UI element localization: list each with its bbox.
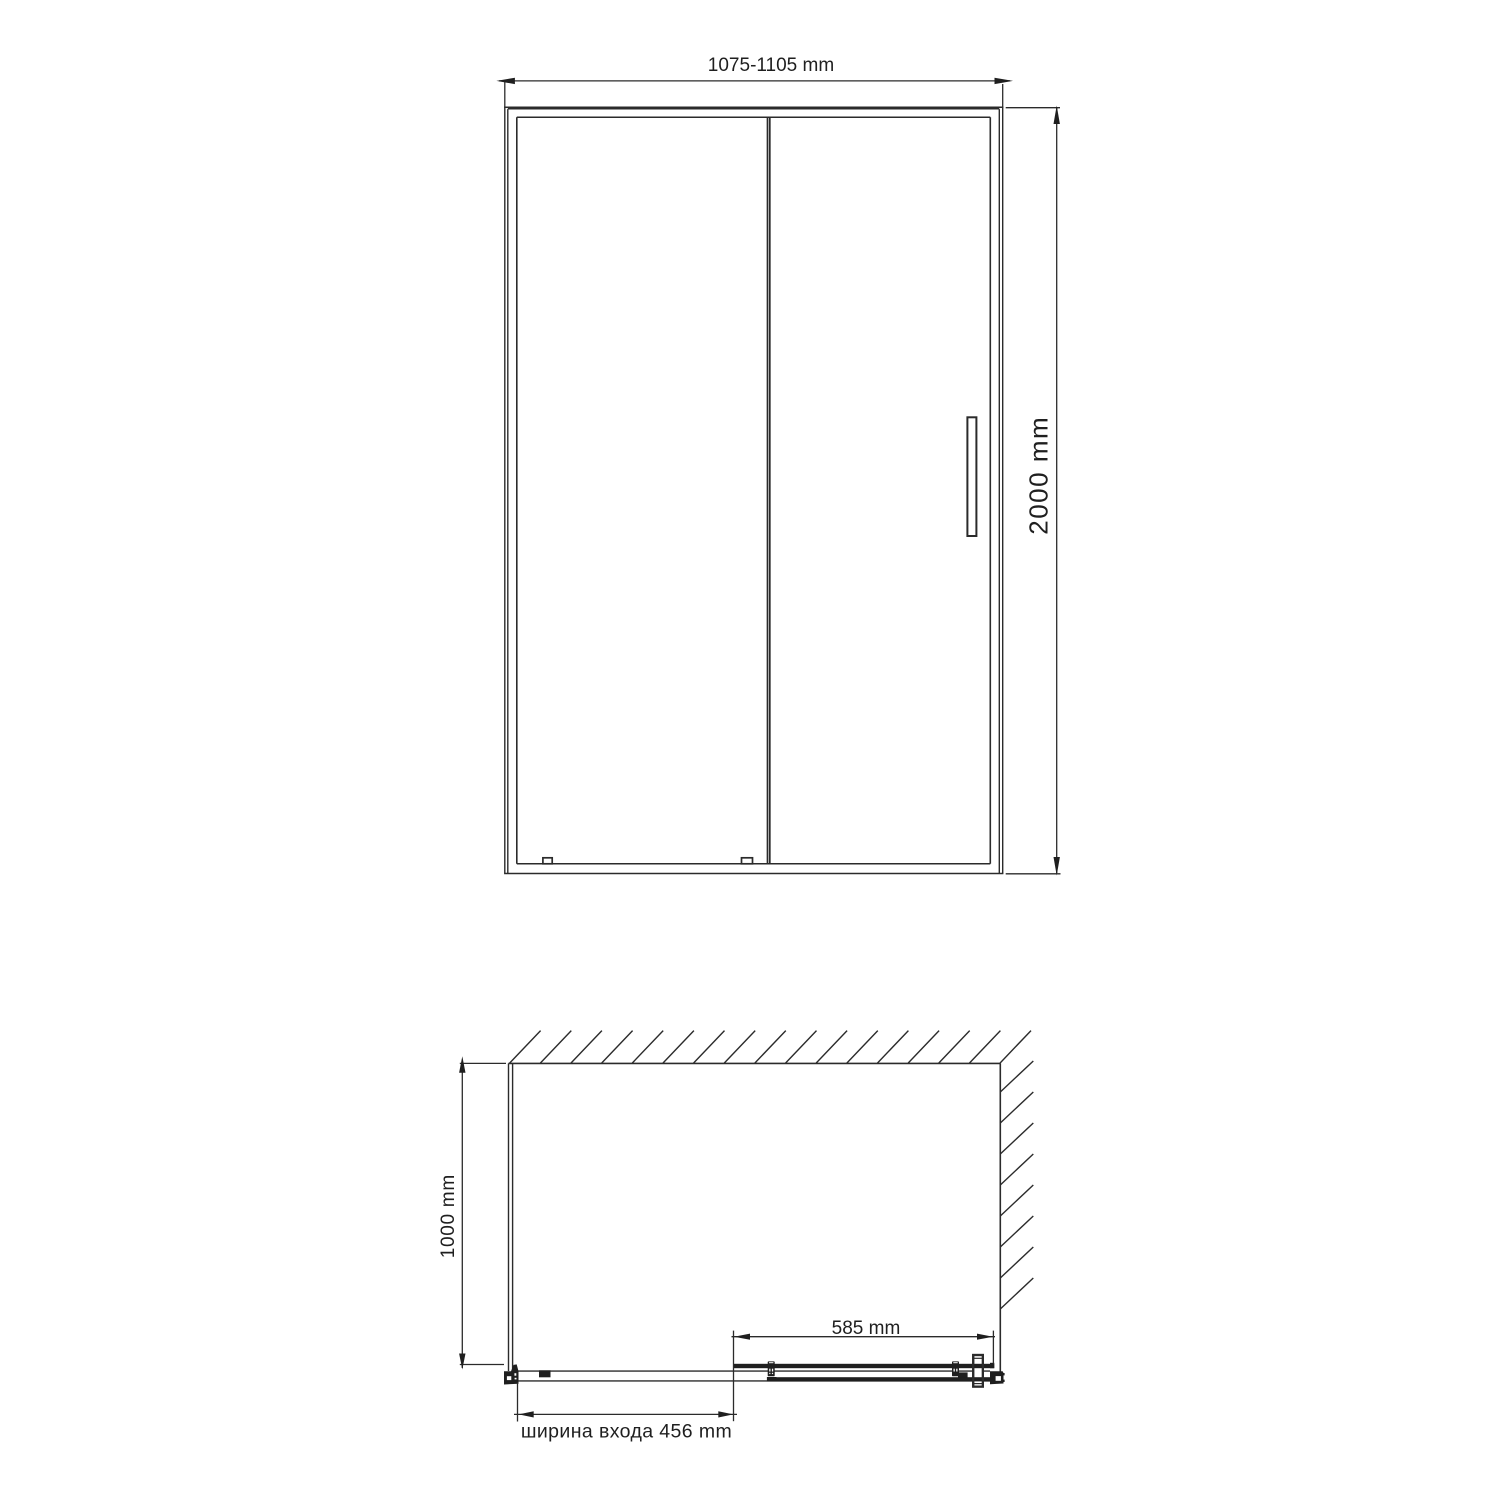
svg-text:2000 mm: 2000 mm [1024,416,1054,535]
svg-text:1075-1105 mm: 1075-1105 mm [708,55,834,76]
svg-text:1000 mm: 1000 mm [438,1174,459,1258]
svg-text:ширина входа 456 mm: ширина входа 456 mm [521,1421,732,1443]
svg-text:585 mm: 585 mm [832,1318,901,1339]
